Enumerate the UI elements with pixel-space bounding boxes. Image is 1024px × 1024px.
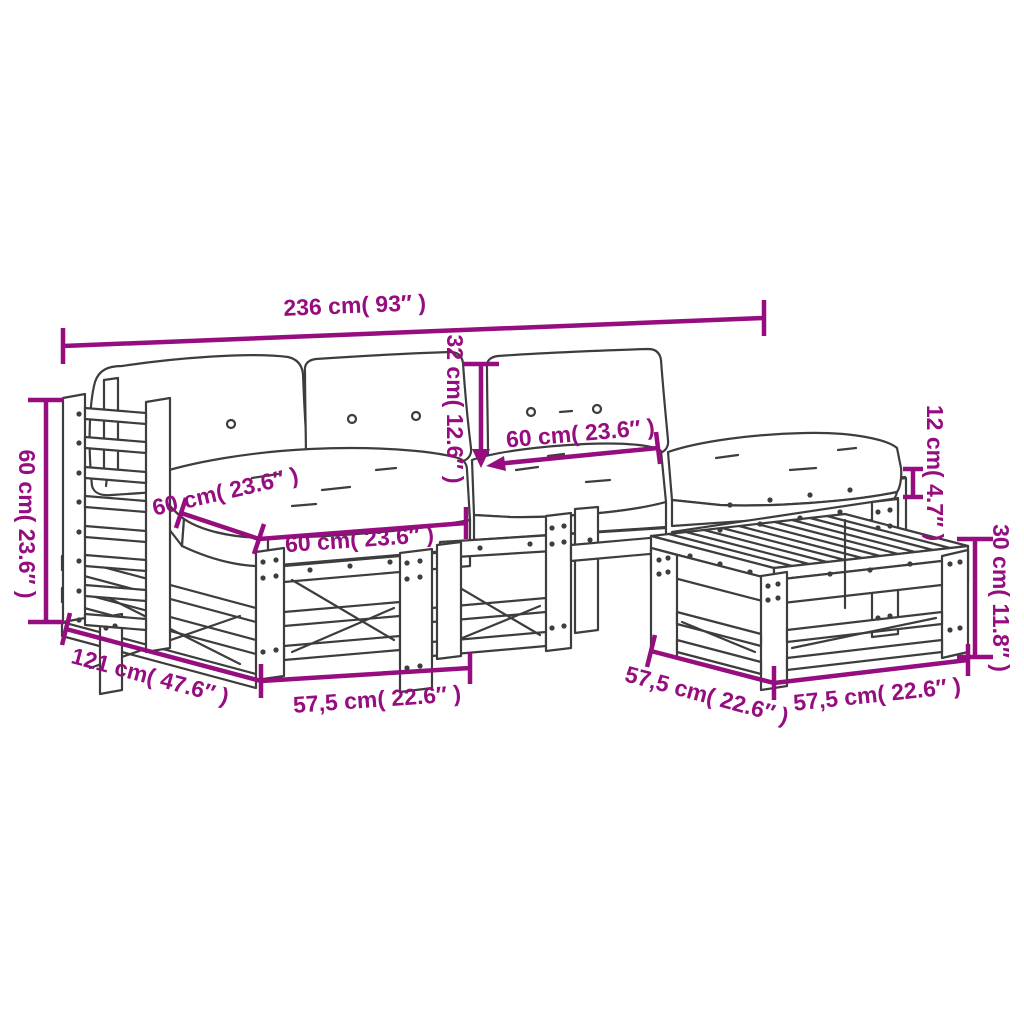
- garden-lounge-set-drawing: [62, 349, 968, 694]
- dim-table-height-label: 30 cm( 11.8″ ): [988, 524, 1014, 672]
- product-dimension-diagram: 236 cm( 93″ ) 60 cm( 23.6″ ) 60 cm( 23.6…: [0, 0, 1024, 1024]
- dim-armrest-height-label: 60 cm( 23.6″ ): [14, 449, 40, 598]
- dim-overall-width-label: 236 cm( 93″ ): [283, 289, 427, 321]
- dim-back-cushion-height-label: 32 cm( 12.6″ ): [442, 334, 468, 483]
- dim-module-width-label: 57,5 cm( 22.6″ ): [292, 680, 462, 718]
- dim-cushion-thickness-label: 12 cm( 4.7″ ): [922, 405, 948, 541]
- diagram-canvas: 236 cm( 93″ ) 60 cm( 23.6″ ) 60 cm( 23.6…: [0, 0, 1024, 1024]
